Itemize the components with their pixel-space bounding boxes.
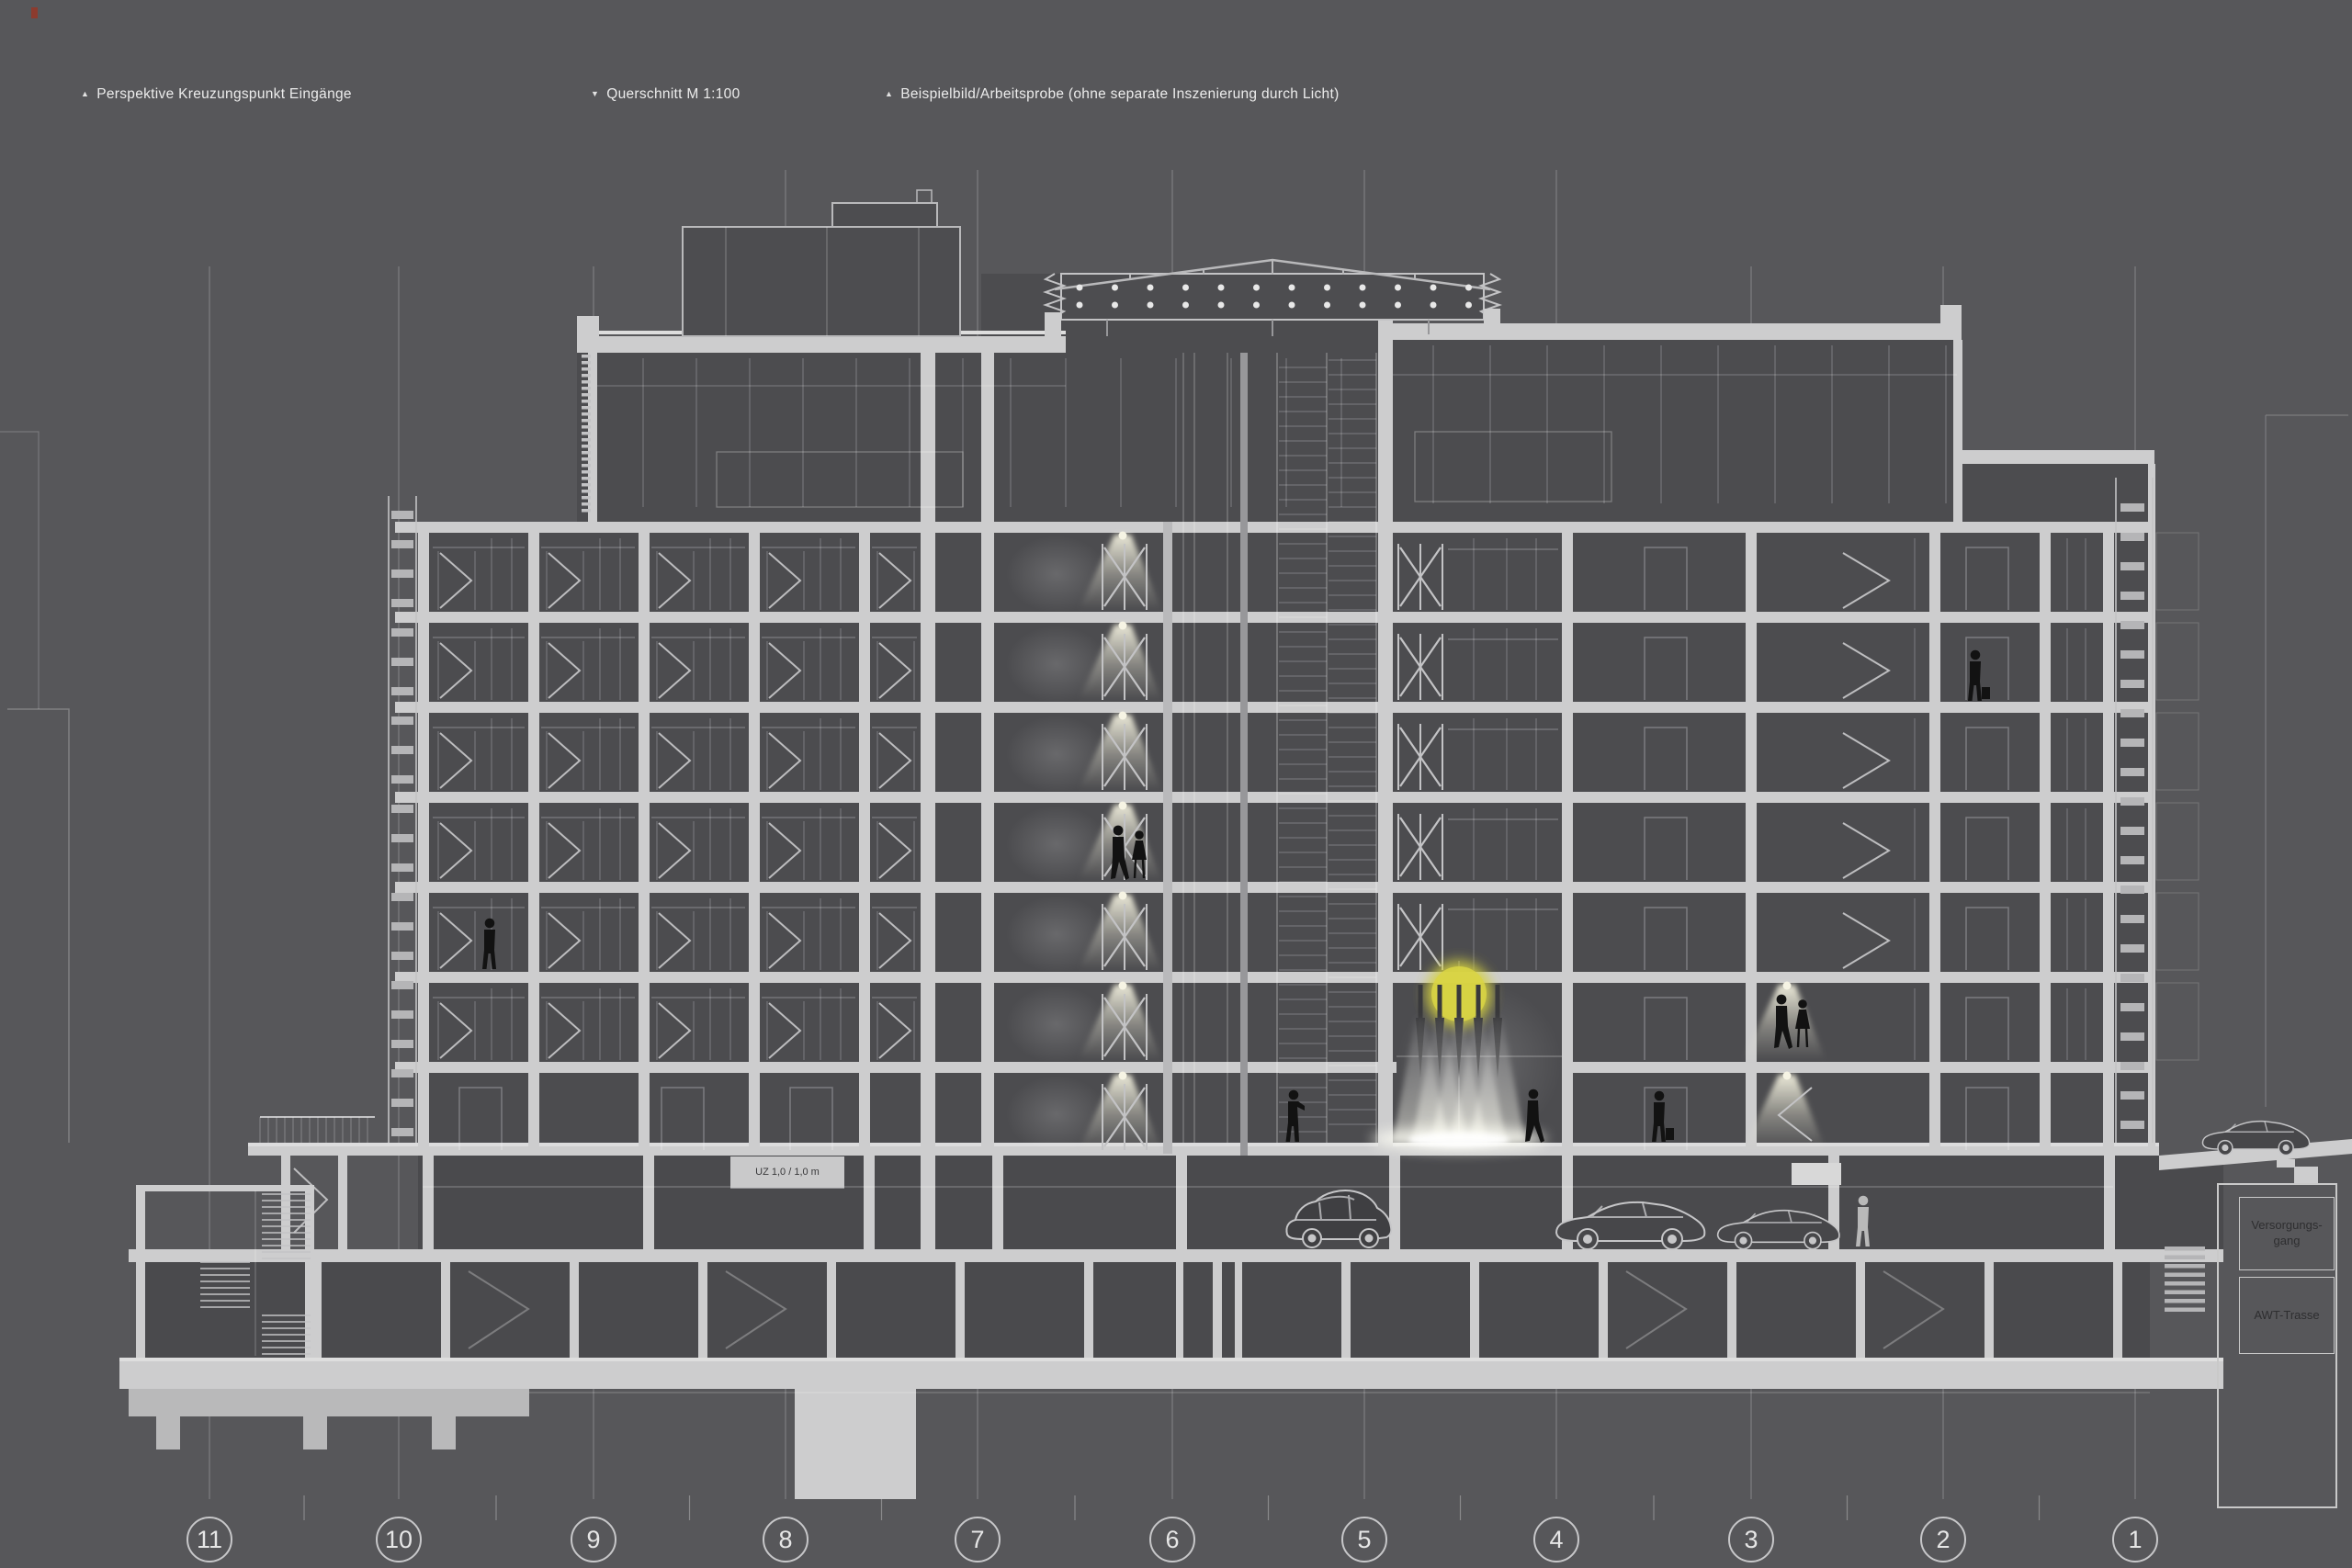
note-perspektive: ▲ Perspektive Kreuzungspunkt Eingänge [81, 86, 352, 103]
beam-dimension-label: UZ 1,0 / 1,0 m [730, 1156, 844, 1189]
note-beispielbild: ▲ Beispielbild/Arbeitsprobe (ohne separa… [885, 86, 1340, 103]
axis-marker-9: 9 [571, 1517, 616, 1562]
axis-marker-2: 2 [1920, 1517, 1966, 1562]
rooftop-structures [683, 190, 960, 336]
triangle-up-icon: ▲ [81, 89, 89, 98]
foundation [119, 1358, 2223, 1499]
triangle-down-icon: ▼ [591, 89, 599, 98]
axis-marker-11: 11 [187, 1517, 232, 1562]
axis-marker-3: 3 [1728, 1517, 1774, 1562]
note-querschnitt: ▼ Querschnitt M 1:100 [591, 86, 741, 103]
axis-marker-1: 1 [2112, 1517, 2158, 1562]
triangle-up-icon: ▲ [885, 89, 893, 98]
axis-marker-7: 7 [955, 1517, 1001, 1562]
note-text: Perspektive Kreuzungspunkt Eingänge [96, 86, 352, 103]
axis-marker-10: 10 [376, 1517, 422, 1562]
axis-marker-8: 8 [763, 1517, 808, 1562]
supply-corridor-label: Versorgungs- gang [2239, 1197, 2335, 1270]
awt-route-label: AWT-Trasse [2239, 1277, 2335, 1354]
axis-marker-4: 4 [1533, 1517, 1579, 1562]
note-text: Beispielbild/Arbeitsprobe (ohne separate… [900, 86, 1339, 103]
architectural-section-sheet: ▲ Perspektive Kreuzungspunkt Eingänge ▼ … [0, 0, 2352, 1568]
axis-marker-6: 6 [1149, 1517, 1195, 1562]
axis-marker-5: 5 [1341, 1517, 1387, 1562]
corner-mark [31, 7, 38, 18]
section-drawing [0, 0, 2352, 1568]
note-text: Querschnitt M 1:100 [606, 86, 740, 103]
